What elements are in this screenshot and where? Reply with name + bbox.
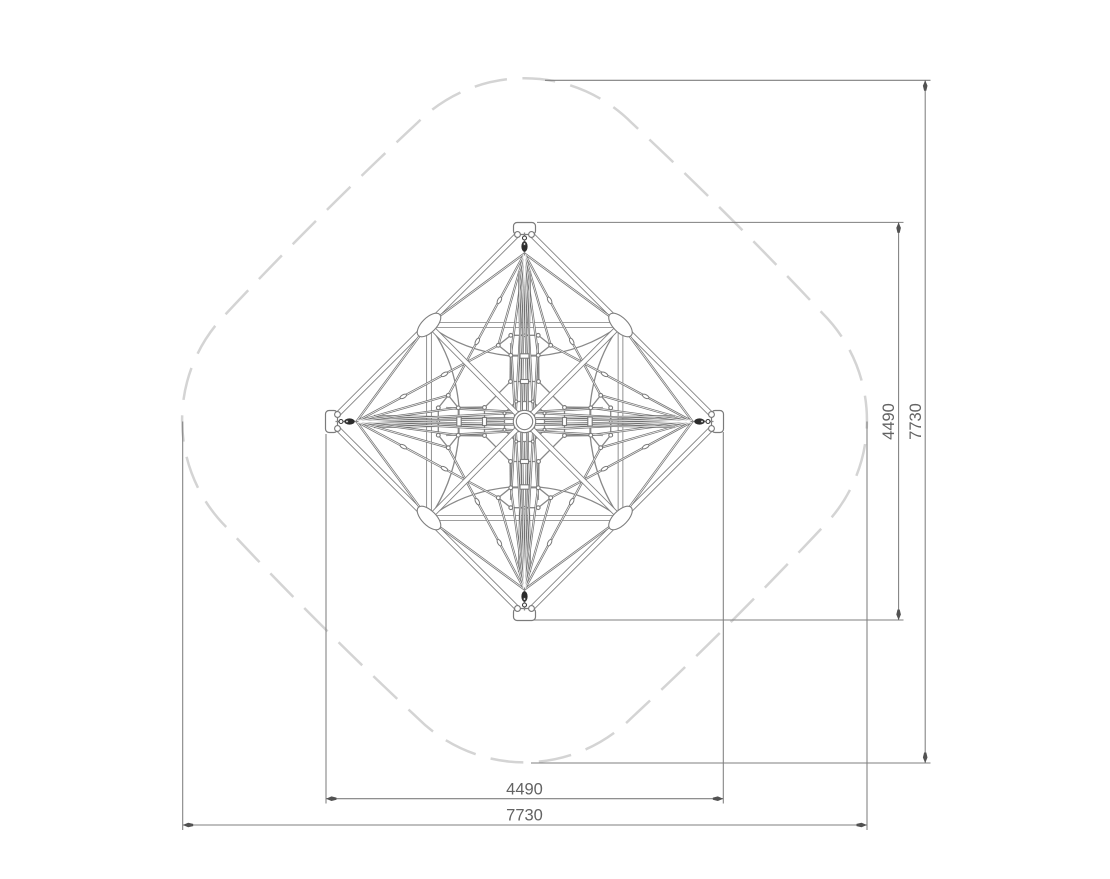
svg-text:7730: 7730 <box>506 806 543 824</box>
svg-text:4490: 4490 <box>880 403 898 440</box>
svg-text:4490: 4490 <box>506 780 543 798</box>
svg-text:7730: 7730 <box>907 403 925 440</box>
